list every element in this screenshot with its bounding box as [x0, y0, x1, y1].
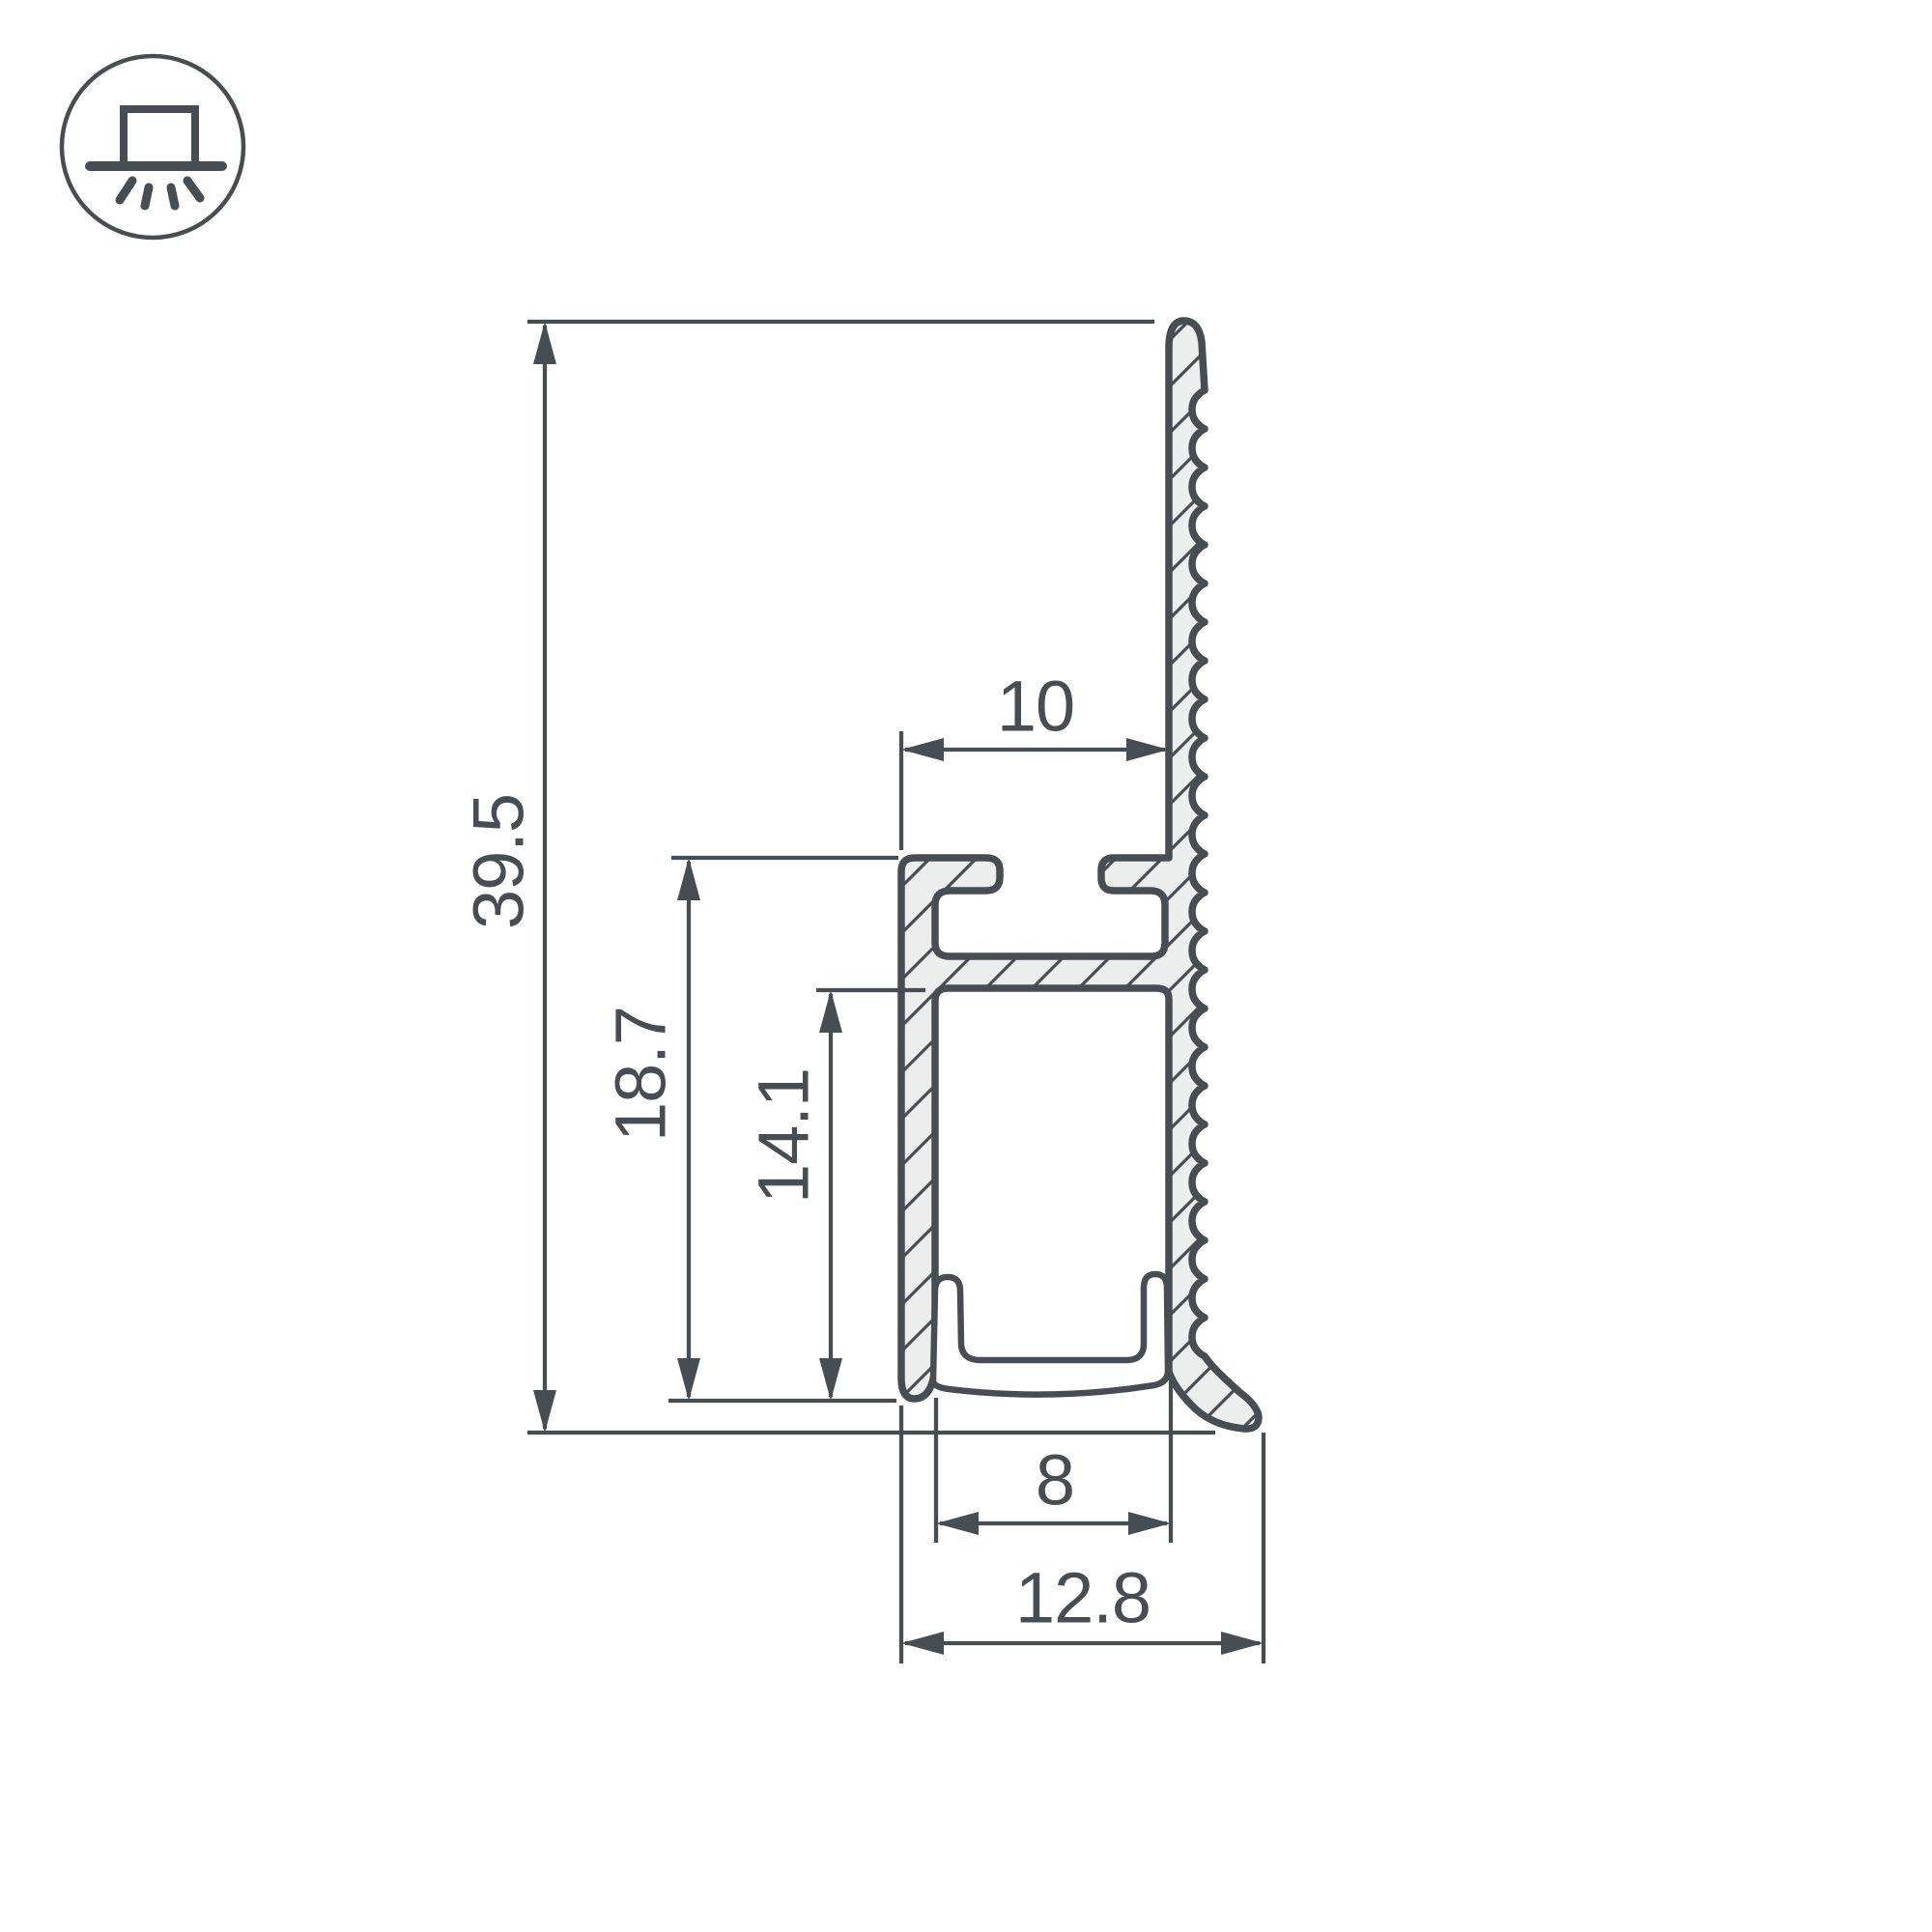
- arrowhead-up: [677, 858, 700, 900]
- surface-mounted-light-icon: [62, 56, 243, 238]
- dimension-flange-width: 10: [901, 667, 1169, 851]
- arrowhead-up: [533, 322, 556, 364]
- icon-light-rays: [120, 181, 200, 206]
- arrowhead-left: [901, 1632, 944, 1655]
- diffuser-cover: [933, 1274, 1168, 1395]
- dimension-label-channel-height: 14.1: [744, 1068, 824, 1204]
- arrowhead-down: [677, 1358, 700, 1401]
- dimension-total-width: 12.8: [901, 1406, 1264, 1663]
- dimension-label-total-height: 39.5: [459, 794, 539, 929]
- dimension-channel-width: 8: [936, 1379, 1171, 1543]
- technical-drawing-page: 39.5 18.7 14.1 10 8: [0, 0, 1932, 1932]
- icon-circle: [62, 56, 243, 238]
- arrowhead-left: [936, 1512, 979, 1535]
- arrowhead-up: [819, 990, 842, 1033]
- icon-fixture-square: [124, 109, 195, 166]
- arrowhead-down: [819, 1358, 842, 1401]
- dimension-label-total-width: 12.8: [1015, 1558, 1151, 1638]
- arrowhead-down: [533, 1390, 556, 1433]
- arrowhead-right: [1126, 738, 1169, 761]
- arrowhead-left: [901, 738, 944, 761]
- arrowhead-right: [1128, 1512, 1171, 1535]
- dimension-label-flange-width: 10: [997, 667, 1074, 747]
- aluminum-profile-body: [901, 321, 1259, 1429]
- led-profile-dimension-drawing: 39.5 18.7 14.1 10 8: [0, 0, 1932, 1932]
- dimension-label-channel-width: 8: [1036, 1440, 1074, 1520]
- arrowhead-right: [1221, 1632, 1264, 1655]
- profile-cross-section: [901, 321, 1259, 1429]
- dimension-label-flange-height: 18.7: [601, 1007, 681, 1142]
